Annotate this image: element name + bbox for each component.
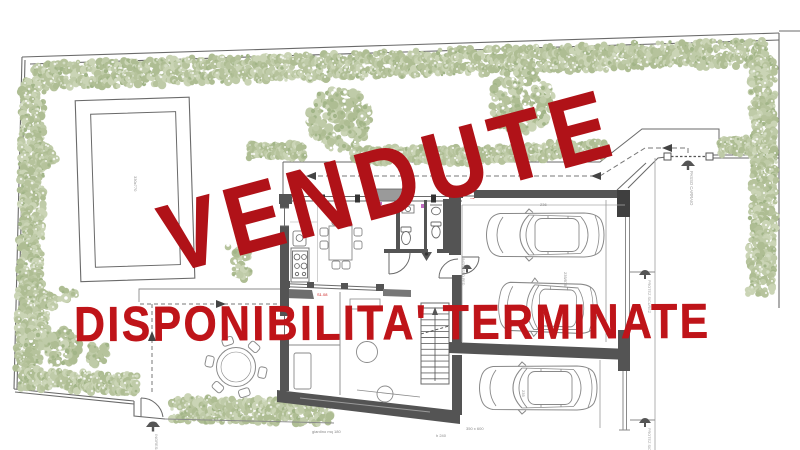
svg-text:INGRESSO: INGRESSO xyxy=(154,434,159,450)
svg-text:PROTEZ SICUREZ: PROTEZ SICUREZ xyxy=(647,428,651,450)
svg-text:PASSO CARRAIO: PASSO CARRAIO xyxy=(689,171,694,206)
